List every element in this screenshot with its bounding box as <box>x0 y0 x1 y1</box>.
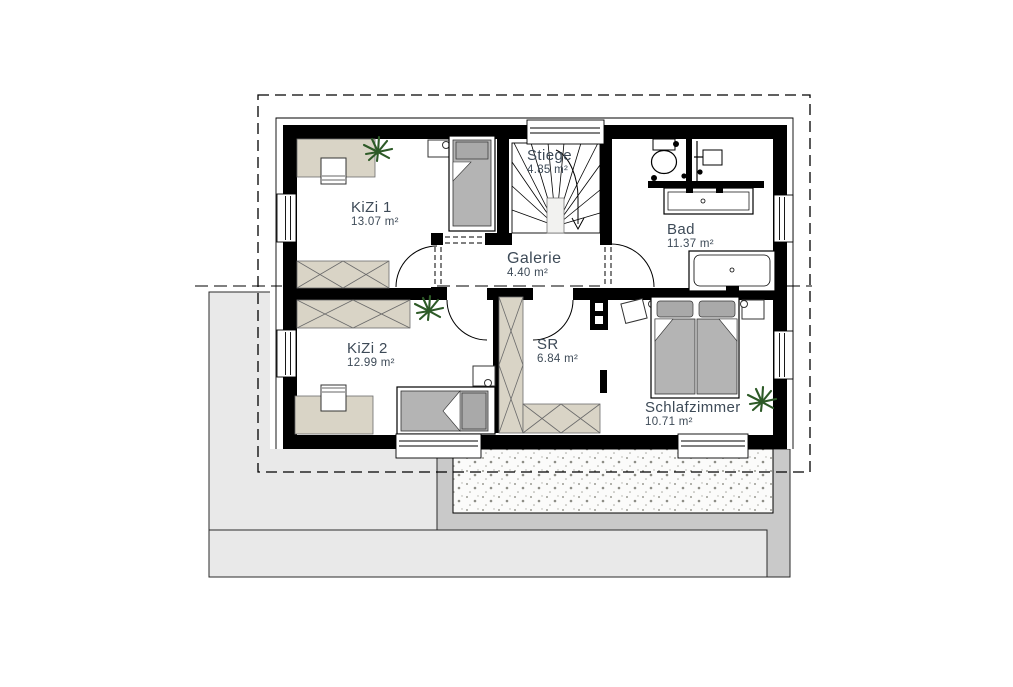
washbasin-vanity <box>664 188 753 214</box>
wardrobe-column <box>499 297 523 433</box>
shower-partition <box>686 139 692 183</box>
wardrobe <box>297 261 389 288</box>
wardrobe <box>297 300 410 328</box>
lamp-icon <box>741 301 748 308</box>
chair <box>321 158 346 184</box>
chair <box>321 385 346 411</box>
floorplan-drawing <box>0 0 1013 687</box>
window-kizi2-bottom <box>396 434 481 458</box>
nightstand <box>741 300 765 319</box>
wall-sr-schlafzimmer <box>600 370 607 393</box>
tap-icon <box>716 188 723 193</box>
pillow <box>456 142 488 159</box>
bath-half-wall <box>648 181 764 188</box>
tap-icon <box>686 188 693 193</box>
tap-icon <box>726 286 739 292</box>
window-bad-right <box>774 195 793 242</box>
wardrobe-bottom <box>523 404 600 433</box>
terrace-bottom-area <box>209 530 767 577</box>
door-post <box>431 287 447 300</box>
wall-stair-bad <box>600 139 612 245</box>
window-schlafzimmer-right <box>774 331 793 379</box>
door-post <box>431 233 443 245</box>
window-kizi1-left <box>277 194 296 242</box>
lamp-icon <box>485 380 492 387</box>
pillow <box>699 301 735 317</box>
window-stiege-top <box>527 120 604 144</box>
stair-landing-column <box>547 198 564 233</box>
nightstand <box>473 366 495 387</box>
nightstand <box>428 140 450 157</box>
bathtub <box>689 251 775 292</box>
wall-kizi1-kizi2 <box>283 288 431 300</box>
floorplan-canvas: KiZi 1 13.07 m² Stiege 4.85 m² Bad 11.37… <box>0 0 1013 687</box>
double-bed <box>651 297 739 398</box>
window-schlafzimmer-bottom <box>678 434 748 458</box>
single-bed <box>397 387 495 434</box>
single-bed <box>449 136 495 231</box>
pillow <box>462 393 486 429</box>
gravel-strip <box>453 449 773 513</box>
wall-notch <box>485 233 512 245</box>
pillow <box>657 301 693 317</box>
window-kizi2-left <box>277 330 296 377</box>
wall-kizi1-stair <box>497 139 509 245</box>
